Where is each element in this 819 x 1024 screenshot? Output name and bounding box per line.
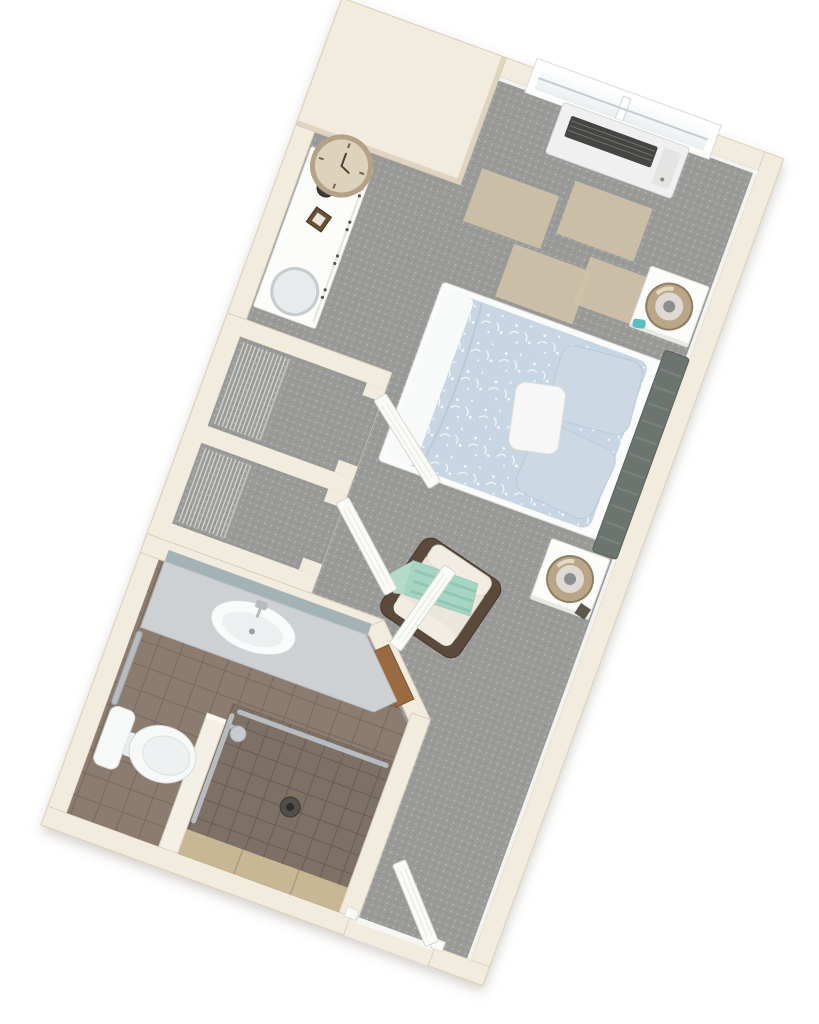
floor-plan-page [0, 0, 819, 1024]
accent-pillow [508, 381, 567, 455]
floor-plan-canvas [0, 0, 819, 1024]
accent-pillow-shape [508, 381, 567, 455]
apartment-plan [41, 0, 787, 986]
